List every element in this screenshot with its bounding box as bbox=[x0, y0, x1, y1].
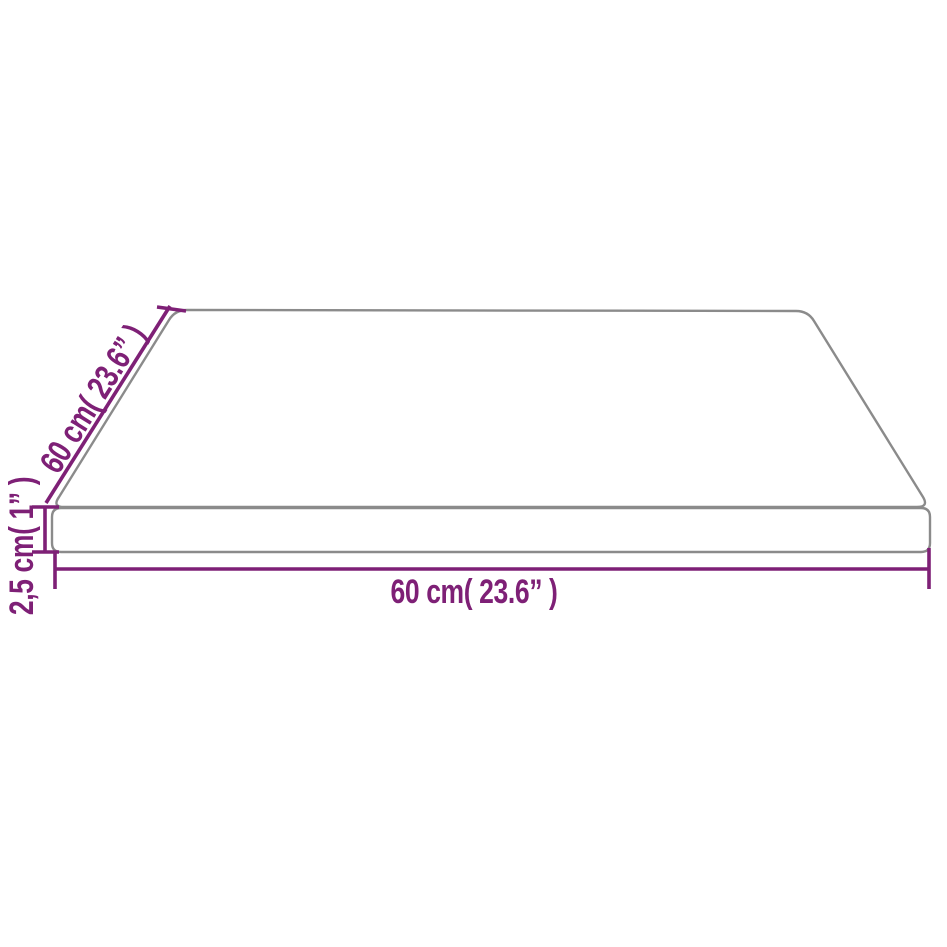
table-top-drawing bbox=[0, 0, 947, 947]
dimension-diagram: 60 cm( 23.6” ) 2,5 cm( 1” ) 60 cm( 23.6”… bbox=[0, 0, 947, 947]
panel-edge-slab bbox=[52, 508, 930, 552]
thickness-dimension-label: 2,5 cm( 1” ) bbox=[5, 477, 39, 615]
width-dimension-label: 60 cm( 23.6” ) bbox=[390, 575, 557, 609]
depth-dimension-end-tick bbox=[157, 307, 186, 311]
panel-top-surface bbox=[56, 310, 925, 507]
